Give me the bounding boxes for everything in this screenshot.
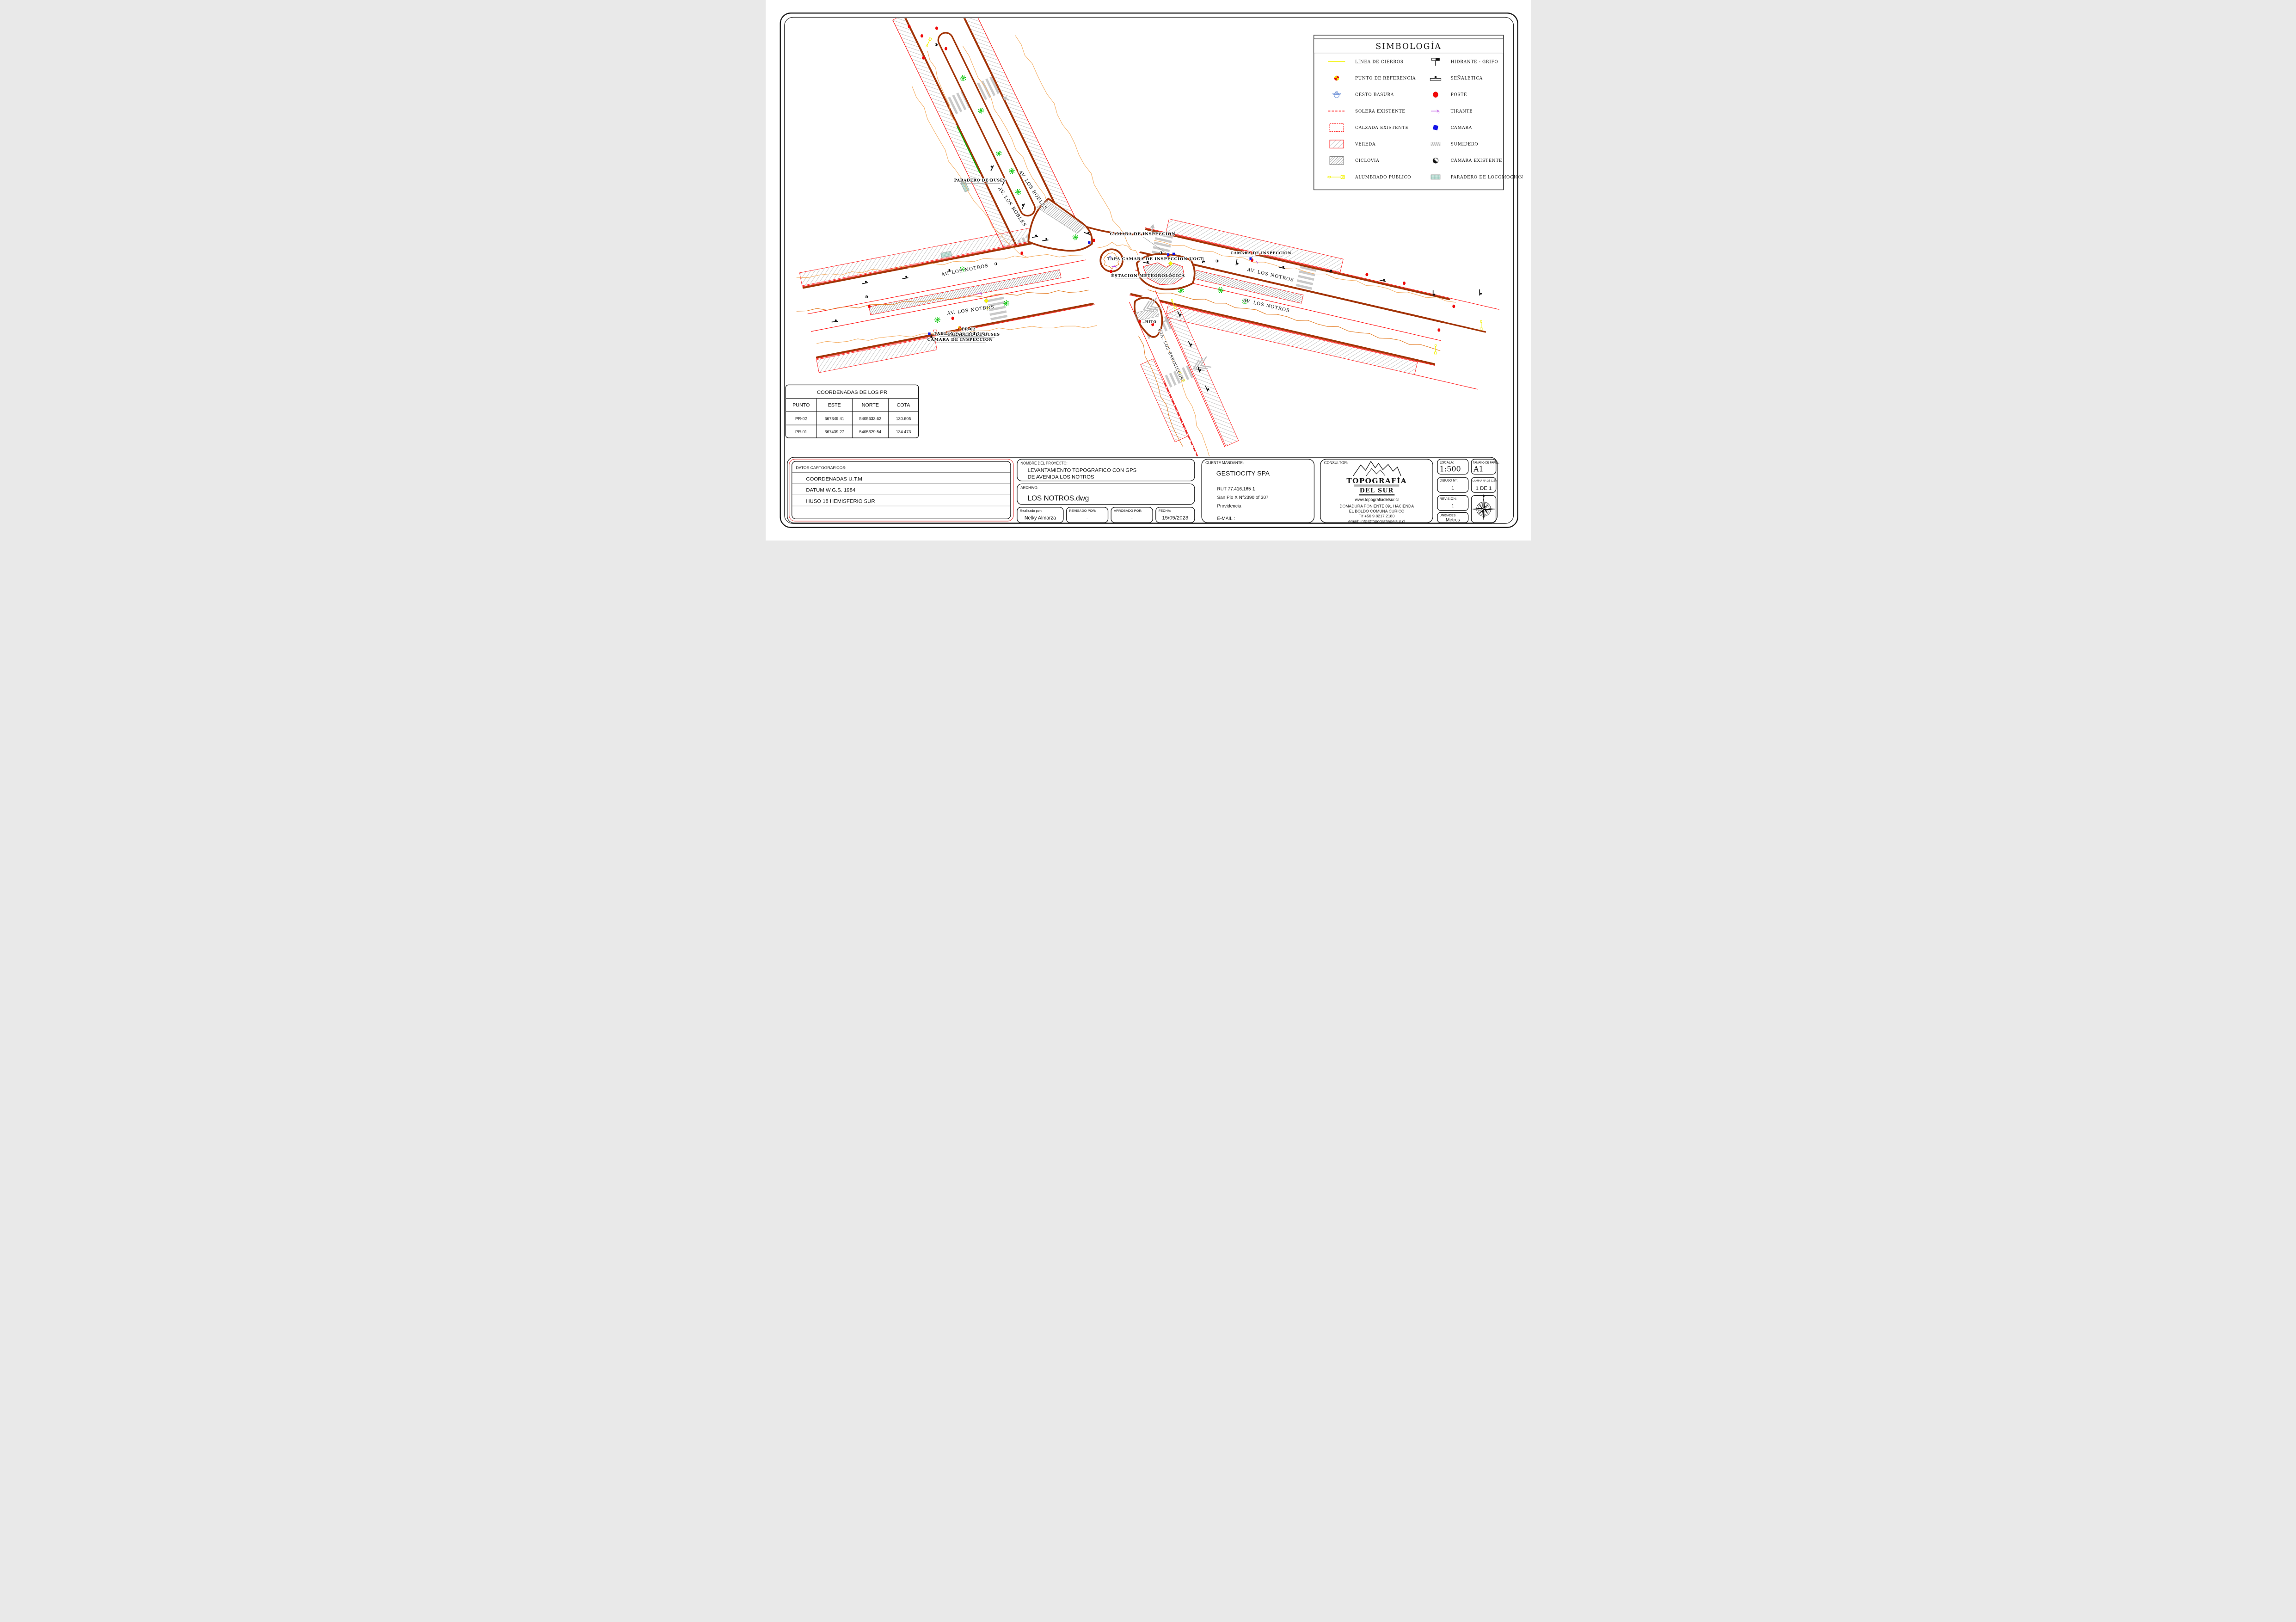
s: [1430, 79, 1441, 80]
drawing-number-label: DIBUJO N°:: [1439, 479, 1457, 483]
map-annotation: PARADERO DE BUSES: [954, 178, 1006, 183]
legend-label: VEREDA: [1355, 142, 1375, 147]
pole-icon: [944, 47, 947, 50]
table-cell: 5405629.54: [859, 430, 881, 434]
pole-icon: [908, 25, 910, 28]
table-cell: PR-02: [795, 416, 806, 421]
table-cell: 134.473: [896, 430, 910, 434]
d: [1430, 142, 1440, 146]
legend-label: CESTO BASURA: [1355, 93, 1394, 98]
consultant-brand1: TOPOGRAFÍA: [1346, 477, 1407, 485]
table-cell: 667349.41: [824, 416, 844, 421]
map-annotation: ESTACION METEOROLÓGICA: [1111, 273, 1185, 278]
pole-icon: [1437, 328, 1440, 332]
roadway-icon: [1330, 123, 1344, 131]
legend-label: CÁMARA EXISTENTE: [1450, 158, 1502, 163]
drawing-number-value: 1: [1451, 485, 1454, 492]
table-header: NORTE: [861, 403, 878, 408]
datos-row-huso: HUSO 18 HEMISFERIO SUR: [806, 499, 875, 504]
consultant-label: CONSULTOR:: [1324, 461, 1348, 465]
legend-label: CICLOVIA: [1355, 159, 1379, 163]
h: [1435, 58, 1439, 61]
legend-label: SOLERA EXISTENTE: [1355, 109, 1405, 114]
map-annotation: HITO: [1145, 319, 1156, 324]
pole-icon: [1020, 252, 1023, 255]
consultant-addr1: DOMADURA PONIENTE 891 HACIENDA: [1339, 504, 1414, 509]
pole-icon: [920, 34, 923, 37]
legend-label: LÍNEA DE CIERROS: [1355, 59, 1404, 64]
table-header: COTA: [896, 403, 910, 408]
consultant-web: www.topografiadelsur.cl: [1354, 498, 1398, 502]
existing-chamber-icon: [1197, 367, 1199, 369]
legend-label: ALUMBRADO PUBLICO: [1355, 175, 1411, 180]
chamber-icon: [1433, 125, 1438, 130]
map-annotation: TAPA CAMARA DE INSPECCION UOCT: [1107, 257, 1203, 262]
s: [1434, 76, 1437, 78]
map-annotation: PR-02: [962, 326, 976, 331]
approved-by-label: APROBADO POR:: [1114, 509, 1142, 513]
c: [1433, 125, 1438, 130]
paper-size-value: A1: [1473, 465, 1483, 473]
existing-chamber-icon: [865, 295, 867, 298]
consultant-email: email: info@topografiadelsur.cl: [1348, 519, 1405, 523]
legend-label: POSTE: [1450, 93, 1467, 98]
pole-icon: [1433, 92, 1438, 98]
table-header: ESTE: [828, 403, 841, 408]
table-header: PUNTO: [792, 403, 810, 408]
chamber-icon: [1088, 241, 1090, 244]
client-email-label: E-MAIL :: [1217, 516, 1234, 521]
approved-by-value: -: [1131, 516, 1133, 521]
legend-label: PARADERO DE LOCOMOCION: [1450, 175, 1523, 180]
sidewalk-icon: [1330, 140, 1344, 148]
reviewed-by-label: REVISADO POR:: [1069, 509, 1096, 513]
coordinates-table: COORDENADAS DE LOS PRPUNTOESTENORTECOTAP…: [786, 385, 918, 438]
table-cell: 5405633.62: [859, 416, 881, 421]
legend-label: CAMARA: [1450, 126, 1472, 130]
chamber-icon: [928, 332, 930, 335]
r: [1330, 157, 1344, 165]
datos-row-utm: COORDENADAS U.T.M: [806, 477, 862, 482]
map-annotation: PARADERO DE BUSES: [948, 332, 1000, 337]
table-title: COORDENADAS DE LOS PR: [816, 390, 887, 395]
sheet-wrapper: AV. LOS ROBLESAV. LOS ROBLESAV. LOS NOTR…: [766, 0, 1531, 541]
bus-stop-icon: [1430, 175, 1440, 179]
bikeway-icon: [1330, 157, 1344, 165]
pole-icon: [868, 305, 871, 308]
legend-box: SIMBOLOGÍA LÍNEA DE CIERROSPUNTO DE REFE…: [1314, 35, 1523, 190]
legend-label: SUMIDERO: [1450, 142, 1478, 147]
pole-icon: [951, 317, 954, 320]
legend-label: TIRANTE: [1450, 109, 1473, 114]
pole-icon: [1138, 319, 1141, 323]
legend-label: PUNTO DE REFERENCIA: [1355, 76, 1416, 81]
date-value: 15/05/2023: [1162, 516, 1188, 521]
table-cell: 667439.27: [824, 430, 844, 434]
map-annotation: CAMARA DE INSPECCION: [1230, 251, 1291, 255]
sign-dot: [1433, 294, 1435, 295]
table-cell: 130.605: [896, 416, 910, 421]
map-annotation: CAMARA DE INSPECCION: [927, 338, 993, 342]
pole-icon: [1403, 282, 1406, 285]
revision-value: 1: [1451, 503, 1454, 510]
client-addr2: Providencia: [1217, 504, 1241, 509]
b: [1430, 175, 1440, 179]
pole-icon: [1365, 273, 1368, 276]
project-line2: DE AVENIDA LOS NOTROS: [1027, 474, 1094, 480]
pole-icon: [922, 56, 925, 59]
pole-icon: [1092, 239, 1095, 242]
existing-chamber-icon: [935, 43, 937, 46]
existing-chamber-icon: [1216, 260, 1218, 262]
file-label: ARCHIVO:: [1020, 486, 1038, 490]
made-by-label: Realizado por:: [1019, 509, 1041, 513]
reference-point-icon: [1334, 76, 1339, 81]
drain-icon: [1430, 142, 1440, 146]
project-line1: LEVANTAMIENTO TOPOGRAFICO CON GPS: [1027, 467, 1136, 473]
table-cell: PR-01: [795, 430, 806, 434]
chamber-icon: [1172, 253, 1174, 255]
existing-chamber-icon: [1160, 252, 1162, 254]
legend-title: SIMBOLOGÍA: [1375, 42, 1442, 51]
datos-label: DATOS CARTOGRAFICOS:: [796, 465, 846, 470]
made-by-value: Nelky Almarza: [1024, 516, 1056, 521]
legend-label: HIDRANTE - GRIFO: [1450, 60, 1498, 64]
existing-chamber-icon: [995, 263, 997, 265]
sign-dot: [1480, 293, 1481, 295]
client-rut: RUT 77.416.165-1: [1217, 486, 1255, 492]
legend-label: CALZADA EXISTENTE: [1355, 126, 1409, 130]
project-label: NOMBRE DEL PROYECTO:: [1020, 461, 1068, 465]
client-addr1: San Pio X N°2390 of 307: [1217, 495, 1269, 500]
date-label: FECHA:: [1158, 509, 1171, 513]
datos-row-datum: DATUM W.G.S. 1984: [806, 488, 855, 493]
title-block: DATOS CARTOGRAFICOS: COORDENADAS U.T.M D…: [787, 457, 1499, 523]
reviewed-by-value: -: [1086, 516, 1088, 521]
map-annotation: CAMARA DE INSPECCION: [1110, 232, 1175, 237]
pole-icon: [1452, 305, 1455, 308]
revision-label: REVISIÓN:: [1439, 497, 1456, 501]
units-value: Metros: [1446, 518, 1460, 523]
client-label: CLIENTE MANDANTE:: [1205, 461, 1244, 465]
consultant-tel: Tlf +56 9 8217 2180: [1359, 514, 1394, 518]
consultant-addr2: EL BOLDO COMUNA CURICO: [1349, 509, 1404, 513]
reference-point-icon: [958, 326, 961, 329]
r: [1330, 123, 1344, 131]
consultant-brand2: DEL SUR: [1359, 487, 1394, 494]
p: [1433, 92, 1438, 98]
scale-value: 1:500: [1439, 465, 1461, 473]
file-value: LOS NOTROS.dwg: [1027, 494, 1089, 502]
r: [1330, 140, 1344, 148]
units-label: UNIDADES:: [1439, 514, 1456, 517]
legend-label: SEÑALETICA: [1450, 75, 1482, 81]
pole-icon: [935, 26, 938, 30]
chamber-icon: [1166, 253, 1169, 256]
client-name: GESTIOCITY SPA: [1216, 469, 1270, 477]
sheet-number-value: 1 DE 1: [1475, 486, 1492, 492]
sheet-number-label: LAMINA N°: 23-1138: [1472, 480, 1496, 483]
scale-label: ESCALA:: [1439, 460, 1454, 464]
paper-size-label: TAMAÑO DE PAPEL:: [1473, 461, 1499, 464]
plan-sheet: AV. LOS ROBLESAV. LOS ROBLESAV. LOS NOTR…: [766, 0, 1531, 541]
